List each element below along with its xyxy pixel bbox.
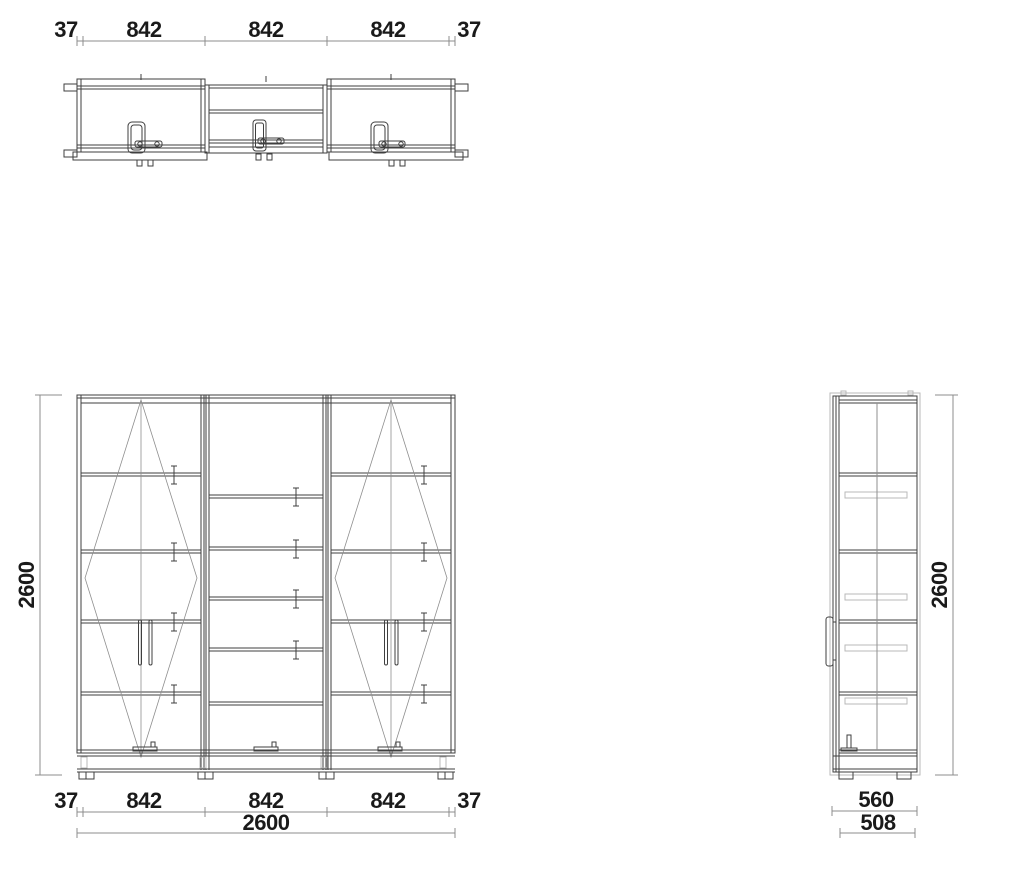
front-plinth <box>77 750 455 779</box>
hinge-icon <box>64 150 77 157</box>
dim-plan-37-left: 37 <box>54 17 78 42</box>
shelf-clip-icon <box>421 685 427 703</box>
shelf-clip-icon <box>293 488 299 506</box>
dim-plan-842-2: 842 <box>248 17 283 42</box>
front-left-door-handles <box>133 620 157 751</box>
door-bottom-bracket <box>151 742 155 747</box>
hidden-shelf-line <box>845 492 907 498</box>
shelf-clip-icon <box>171 466 177 484</box>
dim-front-842-3: 842 <box>370 788 405 813</box>
front-elevation <box>77 395 455 779</box>
dim-side-height: 2600 <box>927 561 952 608</box>
door-bottom-bracket <box>272 742 276 747</box>
side-door-handle <box>826 617 836 666</box>
shelf-clip-icon <box>293 641 299 659</box>
hinge-icon <box>455 84 468 91</box>
front-right-door-handles <box>378 620 402 751</box>
dim-side-depth-outer: 560 <box>858 787 893 812</box>
front-plinth-adjusters <box>81 757 446 768</box>
shelf-clip-icon <box>171 543 177 561</box>
dim-front-842-1: 842 <box>126 788 161 813</box>
foot-icon <box>400 160 405 166</box>
side-elevation <box>826 391 920 779</box>
cad-wardrobe-drawing: 37 842 842 842 37 37 842 842 842 37 2600 <box>0 0 1024 876</box>
plan-right-module <box>327 74 468 166</box>
plan-left-module <box>64 74 207 166</box>
shelf-clip-icon <box>293 540 299 558</box>
dim-front-total-width: 2600 <box>243 810 290 835</box>
dim-plan-37-right: 37 <box>457 17 481 42</box>
hidden-shelf-line <box>845 698 907 704</box>
hinge-icon <box>455 150 468 157</box>
foot-icon <box>897 772 911 779</box>
dim-side-depth-inner: 508 <box>860 810 895 835</box>
hidden-shelf-line <box>845 645 907 651</box>
dim-plan-842-3: 842 <box>370 17 405 42</box>
side-hidden-outline <box>830 391 920 775</box>
foot-icon <box>267 154 272 160</box>
front-left-door-swing <box>85 400 197 757</box>
shelf-clip-icon <box>293 590 299 608</box>
hidden-shelf-line <box>845 594 907 600</box>
shelf-clip-icon <box>421 543 427 561</box>
foot-icon <box>256 154 261 160</box>
foot-icon <box>148 160 153 166</box>
shelf-clip-icon <box>421 613 427 631</box>
dim-front-37-left: 37 <box>54 788 78 813</box>
front-right-door-swing <box>335 400 447 757</box>
shelf-clip-icon <box>421 466 427 484</box>
foot-icon <box>839 772 853 779</box>
dim-front-height: 2600 <box>14 561 39 608</box>
plan-view <box>64 74 468 166</box>
drawing-canvas: 37 842 842 842 37 37 842 842 842 37 2600 <box>0 0 1024 876</box>
plan-middle-handle-mechanism <box>253 120 284 151</box>
foot-icon <box>389 160 394 166</box>
dim-plan-842-1: 842 <box>126 17 161 42</box>
side-carcass <box>833 396 917 779</box>
shelf-clip-icon <box>171 613 177 631</box>
shelf-clip-icon <box>171 685 177 703</box>
front-height-dimension-line <box>35 395 62 775</box>
front-middle-section-shelves <box>209 488 323 751</box>
dim-front-37-right: 37 <box>457 788 481 813</box>
foot-icon <box>137 160 142 166</box>
dimension-annotations: 37 842 842 842 37 37 842 842 842 37 2600 <box>14 17 958 838</box>
door-bottom-bracket <box>396 742 400 747</box>
door-bottom-bracket <box>847 735 851 748</box>
hinge-icon <box>64 84 77 91</box>
plan-right-door-panel <box>329 152 463 160</box>
front-carcass-frame <box>77 395 455 770</box>
